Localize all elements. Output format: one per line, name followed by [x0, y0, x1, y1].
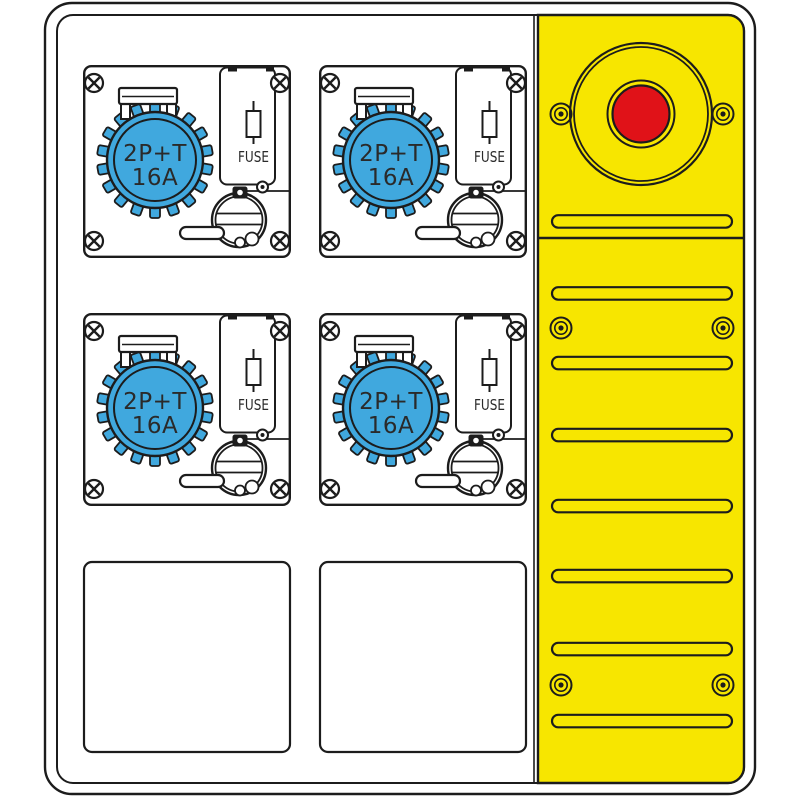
socket-rating-bottom: 16A: [132, 165, 179, 191]
socket-rating-top: 2P+T: [359, 389, 423, 415]
socket-rating-bottom: 16A: [132, 413, 179, 439]
socket-rating-bottom: 16A: [368, 165, 415, 191]
emergency-stop-button[interactable]: [613, 86, 670, 143]
socket-module-1[interactable]: 2P+T 16A FUSE: [84, 66, 290, 257]
socket-module-3[interactable]: 2P+T 16A FUSE: [84, 314, 290, 505]
socket-rating-top: 2P+T: [123, 389, 187, 415]
fuse-label: FUSE: [474, 148, 505, 166]
socket-rating-bottom: 16A: [368, 413, 415, 439]
fuse-label: FUSE: [474, 396, 505, 414]
socket-module-2[interactable]: 2P+T 16A FUSE: [320, 66, 526, 257]
distribution-board-drawing: 2P+T 16A FUSE 2P+T 16A FUSE 2P+T 16A FUS…: [0, 0, 800, 800]
socket-rating-top: 2P+T: [359, 141, 423, 167]
blank-plate-1: [84, 562, 290, 752]
socket-module-4[interactable]: 2P+T 16A FUSE: [320, 314, 526, 505]
fuse-label: FUSE: [238, 396, 269, 414]
blank-plate-2: [320, 562, 526, 752]
fuse-label: FUSE: [238, 148, 269, 166]
panel-svg: 2P+T 16A FUSE 2P+T 16A FUSE 2P+T 16A FUS…: [0, 0, 800, 800]
socket-rating-top: 2P+T: [123, 141, 187, 167]
